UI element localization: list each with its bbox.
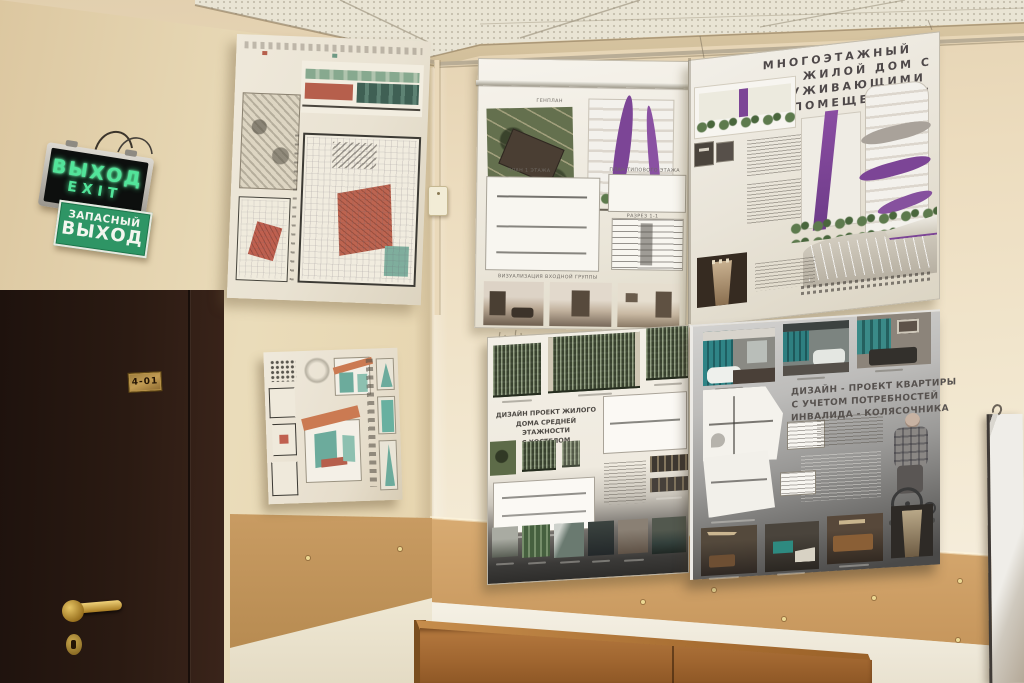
poster-cottage-project xyxy=(263,348,402,505)
ceiling-light xyxy=(707,530,737,537)
mini-plan xyxy=(270,359,297,382)
interior-render-dark xyxy=(765,521,819,572)
mirror xyxy=(747,340,767,363)
door-room-number: 4-01 xyxy=(131,376,158,387)
render-caption xyxy=(839,564,869,568)
interior-render-dark xyxy=(827,513,883,565)
picture-on-wall xyxy=(626,293,638,302)
elevation-baseline xyxy=(302,105,420,112)
teal-accent xyxy=(773,541,793,554)
street-strip-render xyxy=(695,77,795,138)
doorway xyxy=(571,290,589,316)
sign-mount-tab xyxy=(65,140,78,148)
plan-linework xyxy=(302,137,417,283)
sign-mount-tab xyxy=(125,149,138,157)
floor-plan-thumb xyxy=(272,423,297,456)
house-perspective xyxy=(299,401,368,493)
poster-apartment-building-left-sheet: ГЕНПЛАН ПЛАН 1 ЭТАЖА ПЛАН ТИПОВОГО ЭТАЖА… xyxy=(474,58,690,331)
facade-elevation xyxy=(493,343,541,398)
purple-accent xyxy=(739,88,748,117)
photo-thumb xyxy=(652,516,686,554)
interior-render-bedroom xyxy=(857,312,931,369)
door-lock xyxy=(66,634,82,655)
wall-line xyxy=(502,492,586,499)
ceiling-band xyxy=(703,328,775,342)
spire-elevation xyxy=(379,440,399,491)
elevation-teal xyxy=(377,396,396,435)
glazing xyxy=(342,435,355,462)
screw xyxy=(956,638,960,642)
wall-line xyxy=(610,419,680,425)
screw xyxy=(782,617,786,621)
facade-thumb xyxy=(562,440,580,467)
interior-strip-render xyxy=(650,476,688,492)
red-patch xyxy=(279,435,288,444)
lobby-render xyxy=(483,281,544,326)
plan-typ-label: ПЛАН ТИПОВОГО ЭТАЖА xyxy=(609,167,680,174)
ceiling-band xyxy=(783,320,849,332)
wall-line xyxy=(502,510,586,517)
wall-line xyxy=(497,225,587,228)
doorway xyxy=(489,291,505,315)
thumb-mark xyxy=(699,148,709,152)
plan1-label: ПЛАН 1 ЭТАЖА xyxy=(507,167,550,173)
screw xyxy=(872,596,876,600)
wall-line xyxy=(496,251,586,254)
wall-line xyxy=(497,195,587,198)
door-room-plate: 4-01 xyxy=(127,371,162,393)
photo-thumb xyxy=(554,522,584,558)
thumb-render xyxy=(717,142,733,162)
interior-render-hallway xyxy=(891,504,933,559)
screw xyxy=(958,579,962,583)
poster-hand-drawn-plans xyxy=(227,34,431,305)
title-accent xyxy=(262,51,267,55)
facade-elevation xyxy=(548,332,640,393)
screw xyxy=(712,588,716,592)
render-caption xyxy=(875,369,903,373)
facade-end-wall xyxy=(635,332,640,386)
photo-thumb xyxy=(588,520,614,556)
furniture xyxy=(511,307,533,317)
site-plan-thumb xyxy=(490,440,516,476)
poster-accessible-apartment: ДИЗАЙН - ПРОЕКТ КВАРТИРЫ С УЧЕТОМ ПОТРЕБ… xyxy=(690,309,940,580)
section-drawing xyxy=(612,219,683,270)
corridor-end xyxy=(712,260,732,306)
conduit-junction-box xyxy=(428,186,448,216)
screw xyxy=(398,547,402,551)
site-plan-sketch xyxy=(239,92,301,190)
screw xyxy=(306,556,310,560)
poster-apartment-building-right-sheet: МНОГОЭТАЖНЫЙ ЖИЛОЙ ДОМ С ОБСЛУЖИВАЮЩИМИ … xyxy=(688,31,940,328)
tree-sketch xyxy=(304,356,331,385)
title-accent xyxy=(332,54,337,58)
keyhole xyxy=(71,640,76,649)
screw xyxy=(641,600,645,604)
genplan-label: ГЕНПЛАН xyxy=(536,98,563,104)
lobby-render xyxy=(617,283,680,328)
teal-wall xyxy=(783,331,809,363)
spire xyxy=(384,444,395,486)
apartment-plan-2 xyxy=(703,450,775,519)
window-glass xyxy=(339,372,354,392)
doorway xyxy=(655,292,671,318)
floor-plan-typical xyxy=(609,175,685,212)
window-glass xyxy=(381,400,394,432)
window-glass xyxy=(380,363,393,387)
sofa xyxy=(709,554,735,568)
floor-plan-small xyxy=(236,196,291,282)
elevation-strip xyxy=(300,61,424,118)
facade-caption xyxy=(654,382,682,386)
visualization-label: ВИЗУАЛИЗАЦИЯ ВХОДНОЙ ГРУППЫ xyxy=(498,273,598,280)
floor xyxy=(783,362,849,376)
counter xyxy=(795,547,815,562)
corridor-render xyxy=(697,252,747,308)
photo-caption xyxy=(496,562,514,565)
facade-elevation xyxy=(646,326,688,380)
room-photo: 4-01 ВЫХОД EXIT ЗАПАСНЫЙ ВЫХОД xyxy=(0,0,1024,683)
plan-linework xyxy=(239,199,288,279)
photo-caption xyxy=(528,561,546,564)
sheet-seam xyxy=(688,58,691,324)
door: 4-01 xyxy=(0,290,224,683)
lobby-render xyxy=(549,282,612,327)
floor-plan xyxy=(604,392,686,453)
photo-thumb xyxy=(492,526,518,558)
thumb-render xyxy=(695,142,713,166)
annotation-text xyxy=(604,461,646,505)
photo-thumb xyxy=(618,518,648,554)
facade-end-wall xyxy=(548,337,553,391)
hall-end xyxy=(902,510,922,558)
poster-hostel-project: ДИЗАЙН ПРОЕКТ ЖИЛОГО ДОМА СРЕДНЕЙ ЭТАЖНО… xyxy=(487,325,689,585)
wall-line xyxy=(709,420,773,426)
section-core xyxy=(640,223,653,265)
elevation-windows xyxy=(356,83,419,105)
door-handle-rose xyxy=(62,600,84,622)
legend-table xyxy=(781,471,815,495)
render-caption xyxy=(797,377,825,381)
interior-render-bath xyxy=(783,320,849,376)
floor-plan-thumb xyxy=(269,387,296,418)
strip-caption xyxy=(656,496,682,500)
plan-caption xyxy=(711,519,755,524)
cabinet-seam xyxy=(672,646,674,683)
junction-box-dot xyxy=(437,192,440,195)
photo-caption xyxy=(624,559,644,562)
fixture xyxy=(711,433,725,448)
facade-thumb xyxy=(522,440,556,472)
photo-caption xyxy=(560,560,580,563)
elevation-red-block xyxy=(305,83,354,101)
picture-frame-edge xyxy=(987,414,1024,683)
interior-render-bath xyxy=(703,328,775,387)
facade-caption xyxy=(502,399,532,403)
photo-caption xyxy=(592,560,610,563)
floor-plan-large xyxy=(298,133,422,287)
wall-frames xyxy=(897,319,919,334)
plaid-shirt-torso xyxy=(894,426,928,468)
apartment-plan-1 xyxy=(703,385,783,464)
floor-plan-thumb xyxy=(271,461,298,496)
kitchen-units xyxy=(833,533,873,552)
elevation-teal xyxy=(376,358,395,391)
bed xyxy=(869,347,917,366)
elevation-band xyxy=(305,69,419,83)
wall-line xyxy=(733,396,735,454)
interior-render-dark xyxy=(701,525,757,577)
wall-line xyxy=(711,478,767,484)
ceiling-light xyxy=(839,519,865,525)
interior-strip-render xyxy=(650,454,688,472)
photo-thumb xyxy=(522,524,550,558)
floor xyxy=(733,368,775,385)
door-panel-seam xyxy=(188,290,190,683)
plans-column xyxy=(269,387,301,500)
description-paragraph xyxy=(817,413,883,447)
floor-plan-1 xyxy=(486,177,599,271)
